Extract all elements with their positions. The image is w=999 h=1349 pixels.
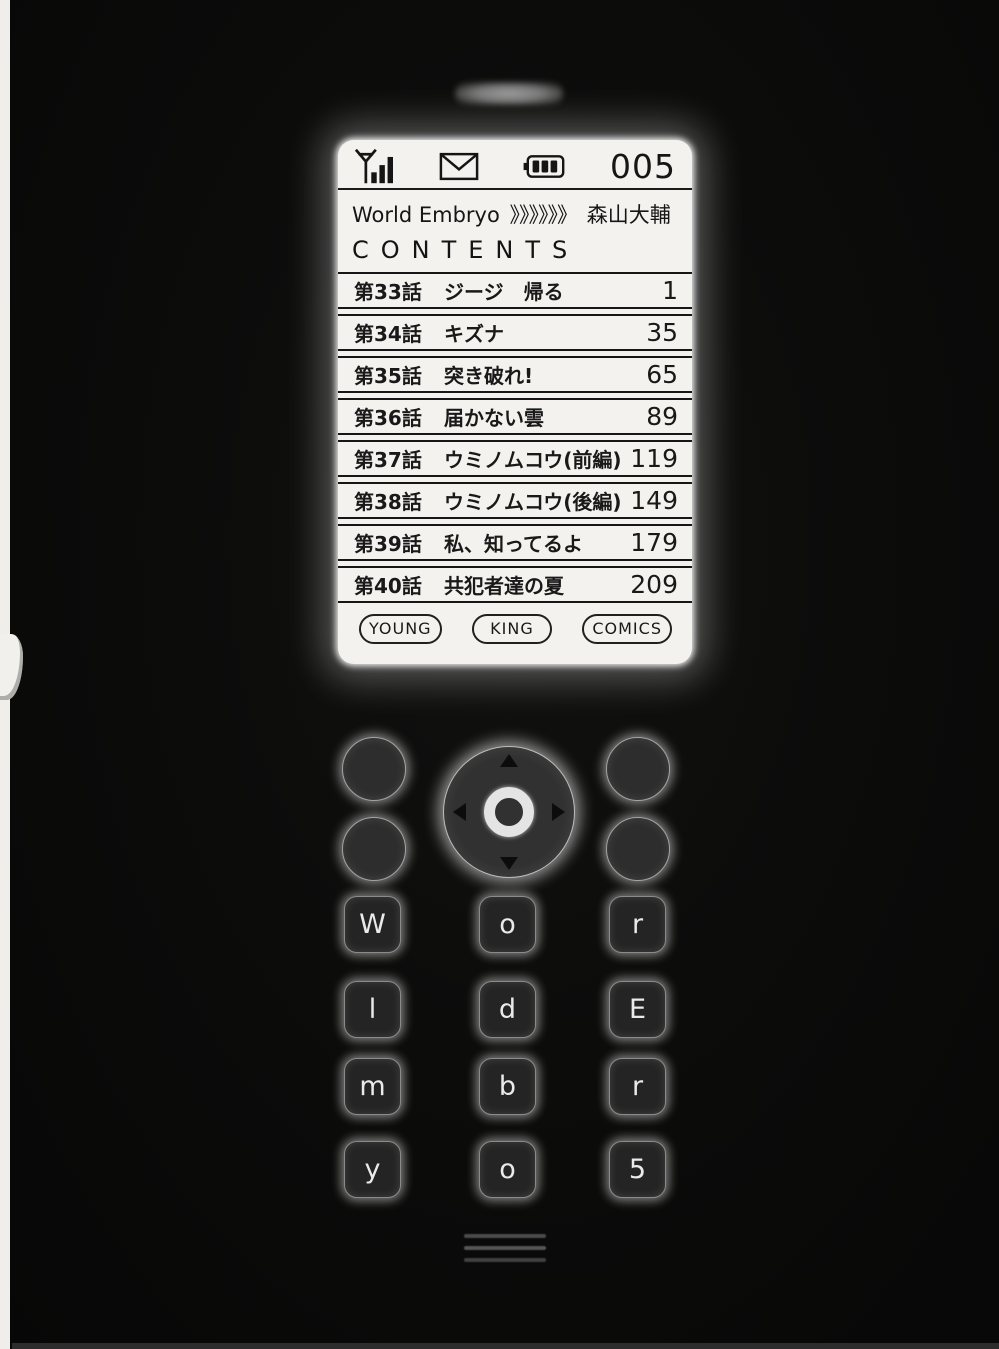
- earpiece-speaker: [455, 82, 563, 105]
- badge-king: KING: [472, 614, 552, 644]
- toc-row: 第38話 ウミノムコウ(後編) 149: [338, 482, 692, 519]
- chapter-number: 第39話: [354, 528, 444, 557]
- toc-row: 第37話 ウミノムコウ(前編) 119: [338, 440, 692, 477]
- chapter-page: 149: [630, 486, 678, 515]
- author-name: 森山大輔: [587, 203, 671, 227]
- chapter-number: 第38話: [354, 486, 444, 515]
- chapter-title: ウミノムコウ(後編): [444, 486, 630, 515]
- toc-row: 第34話 キズナ 35: [338, 314, 692, 351]
- separator-marks: 》》》》》》: [510, 203, 578, 227]
- keypad-key-8[interactable]: b: [479, 1058, 536, 1115]
- directional-pad[interactable]: [443, 746, 575, 878]
- keypad-key-4[interactable]: l: [344, 981, 401, 1038]
- chapter-page: 65: [646, 360, 678, 389]
- dpad-up-arrow-icon[interactable]: [500, 754, 518, 767]
- table-of-contents: 第33話 ジージ 帰る 1 第34話 キズナ 35 第35話 突き破れ! 65 …: [338, 272, 692, 603]
- chapter-page: 209: [630, 570, 678, 599]
- chapter-page: 1: [662, 276, 678, 305]
- soft-key-top-right[interactable]: [606, 737, 670, 801]
- chapter-number: 第36話: [354, 402, 444, 431]
- chapter-number: 第40話: [354, 570, 444, 599]
- status-bar: 005: [338, 140, 692, 190]
- chapter-page: 89: [646, 402, 678, 431]
- chapter-page: 35: [646, 318, 678, 347]
- chapter-title: 共犯者達の夏: [444, 570, 630, 599]
- series-title: World Embryo: [352, 203, 500, 227]
- keypad-key-10[interactable]: y: [344, 1141, 401, 1198]
- soft-key-bottom-left[interactable]: [342, 817, 406, 881]
- keypad-key-1[interactable]: W: [344, 896, 401, 953]
- grille-line: [464, 1258, 546, 1262]
- badge-young: YOUNG: [359, 614, 442, 644]
- chapter-title: ウミノムコウ(前編): [444, 444, 630, 473]
- keypad-key-3[interactable]: r: [609, 896, 666, 953]
- microphone-grille: [464, 1234, 546, 1270]
- toc-row: 第40話 共犯者達の夏 209: [338, 566, 692, 603]
- grille-line: [464, 1234, 546, 1238]
- keypad-key-2[interactable]: o: [479, 896, 536, 953]
- keypad-key-5[interactable]: d: [479, 981, 536, 1038]
- chapter-page: 119: [630, 444, 678, 473]
- status-counter: 005: [610, 150, 676, 183]
- chapter-title: ジージ 帰る: [444, 276, 662, 305]
- dpad-right-arrow-icon[interactable]: [552, 803, 565, 821]
- keypad-key-11[interactable]: o: [479, 1141, 536, 1198]
- page-edge-fold: [0, 634, 23, 700]
- soft-key-top-left[interactable]: [342, 737, 406, 801]
- soft-key-bottom-right[interactable]: [606, 817, 670, 881]
- battery-icon: [523, 154, 565, 179]
- chapter-number: 第33話: [354, 276, 444, 305]
- keypad-key-6[interactable]: E: [609, 981, 666, 1038]
- badge-comics: COMICS: [582, 614, 672, 644]
- chapter-number: 第37話: [354, 444, 444, 473]
- chapter-number: 第34話: [354, 318, 444, 347]
- chapter-number: 第35話: [354, 360, 444, 389]
- screen-header: World Embryo 》》》》》》 森山大輔 CONTENTS: [338, 190, 692, 269]
- grille-line: [464, 1246, 546, 1250]
- envelope-icon: [439, 152, 479, 181]
- keypad-key-12[interactable]: 5: [609, 1141, 666, 1198]
- contents-heading: CONTENTS: [352, 236, 682, 264]
- chapter-title: 突き破れ!: [444, 360, 646, 389]
- scan-bottom-band: [12, 1343, 999, 1349]
- phone-screen: 005 World Embryo 》》》》》》 森山大輔 CONTENTS 第3…: [338, 140, 692, 664]
- chapter-page: 179: [630, 528, 678, 557]
- keypad-key-9[interactable]: r: [609, 1058, 666, 1115]
- signal-antenna-icon: [354, 147, 394, 185]
- dpad-center-ring[interactable]: [484, 787, 534, 837]
- chapter-title: 私、知ってるよ: [444, 528, 630, 557]
- dpad-down-arrow-icon[interactable]: [500, 857, 518, 870]
- toc-row: 第36話 届かない雲 89: [338, 398, 692, 435]
- dpad-left-arrow-icon[interactable]: [453, 803, 466, 821]
- chapter-title: 届かない雲: [444, 402, 646, 431]
- chapter-title: キズナ: [444, 318, 646, 347]
- keypad-key-7[interactable]: m: [344, 1058, 401, 1115]
- toc-row: 第35話 突き破れ! 65: [338, 356, 692, 393]
- publisher-badges: YOUNG KING COMICS: [338, 603, 692, 644]
- manga-page-scan: 005 World Embryo 》》》》》》 森山大輔 CONTENTS 第3…: [0, 0, 999, 1349]
- toc-row: 第33話 ジージ 帰る 1: [338, 272, 692, 309]
- series-title-line: World Embryo 》》》》》》 森山大輔: [352, 199, 682, 229]
- toc-row: 第39話 私、知ってるよ 179: [338, 524, 692, 561]
